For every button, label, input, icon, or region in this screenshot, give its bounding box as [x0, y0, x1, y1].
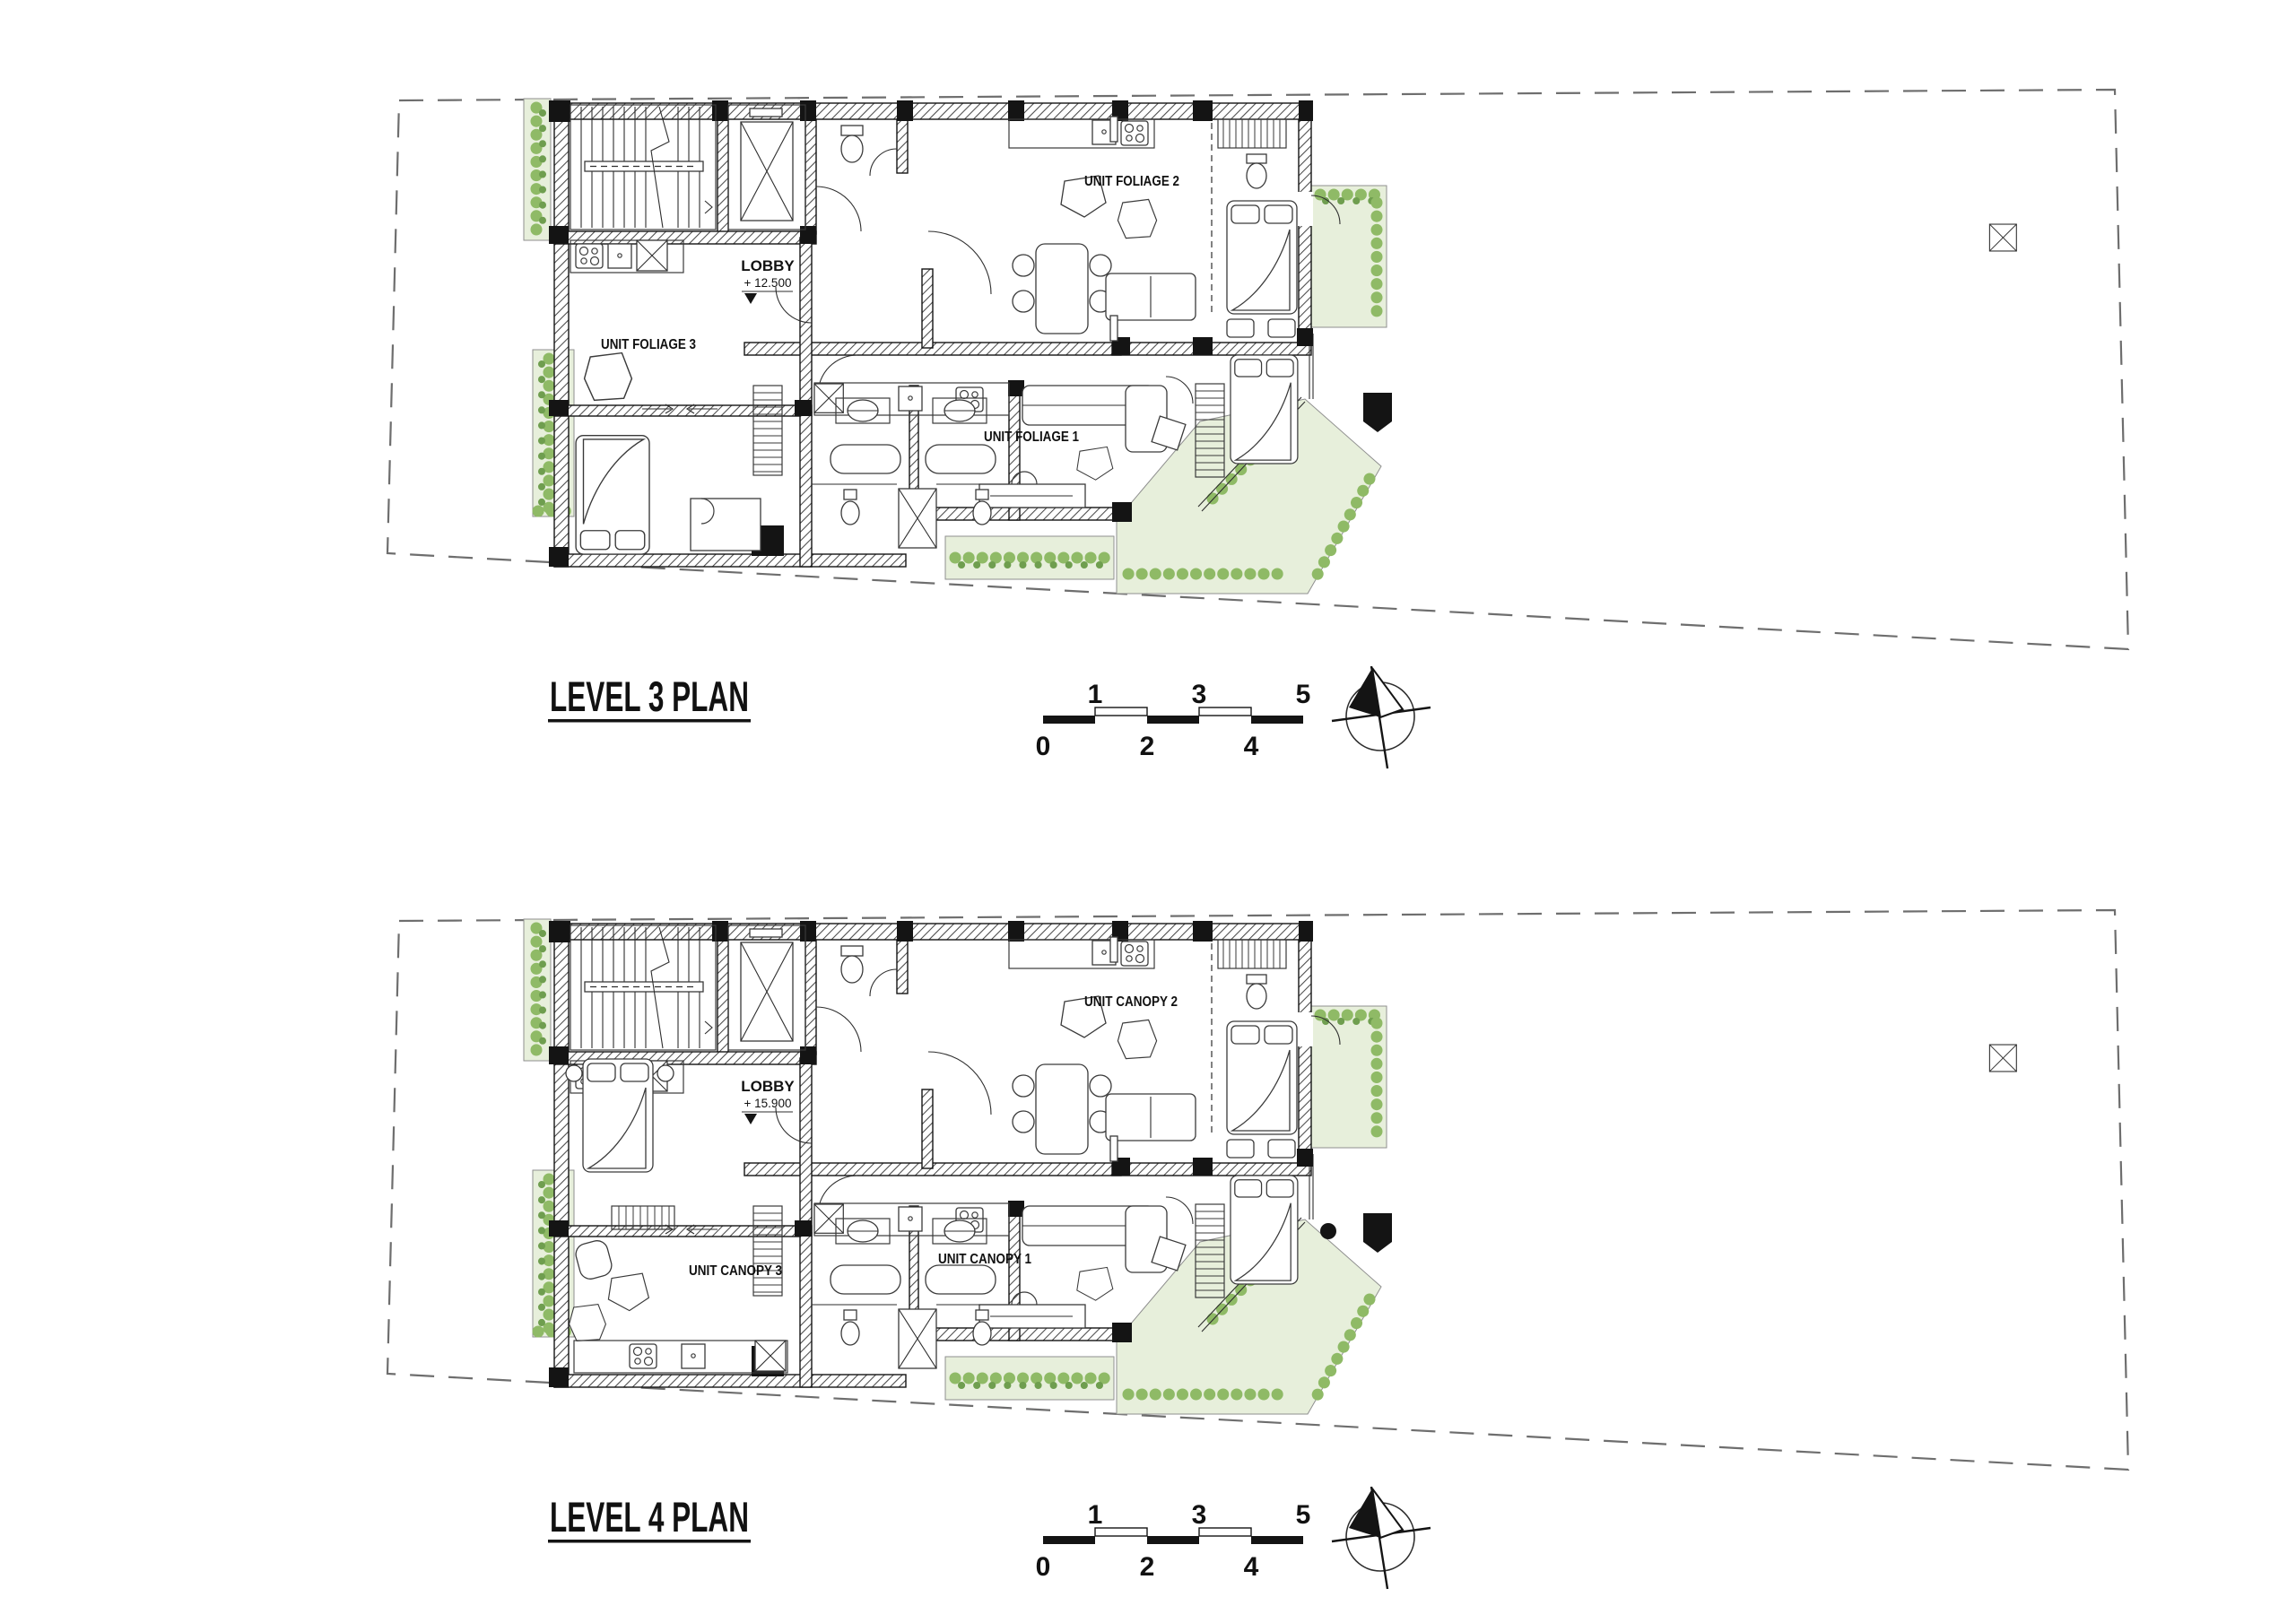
north-arrow-icon: [1332, 666, 1431, 768]
unit-label-left: UNIT FOLIAGE 3: [601, 337, 696, 352]
plan-sheet: UNIT FOLIAGE 2 UNIT FOLIAGE 3 UNIT FOLIA…: [0, 0, 2296, 1623]
unit-label-left: UNIT CANOPY 3: [689, 1263, 782, 1279]
unit-label-top-right: UNIT FOLIAGE 2: [1084, 174, 1179, 189]
title-underline: [548, 719, 751, 723]
svg-text:2: 2: [1140, 1552, 1155, 1582]
lobby-label: LOBBY: [741, 1078, 795, 1095]
north-arrow-icon: [1332, 1487, 1431, 1589]
svg-text:3: 3: [1192, 680, 1207, 709]
scale-bar-level-4: 1 3 5 0 2 4: [1036, 1500, 1311, 1582]
lobby-elevation: + 15.900: [744, 1097, 792, 1110]
svg-text:3: 3: [1192, 1500, 1207, 1530]
plan-title-level-3: LEVEL 3 PLAN: [550, 673, 749, 720]
svg-text:1: 1: [1088, 1500, 1103, 1530]
svg-text:0: 0: [1036, 732, 1051, 761]
unit-label-top-right: UNIT CANOPY 2: [1084, 994, 1178, 1010]
svg-text:5: 5: [1296, 1500, 1311, 1530]
lobby-label: LOBBY: [741, 257, 795, 274]
svg-text:5: 5: [1296, 680, 1311, 709]
svg-text:4: 4: [1244, 1552, 1259, 1582]
title-underline: [548, 1540, 751, 1543]
lobby-elevation: + 12.500: [744, 276, 792, 290]
building-level-4: [524, 919, 2016, 1414]
unit-label-bottom: UNIT FOLIAGE 1: [984, 430, 1079, 445]
unit-label-bottom: UNIT CANOPY 1: [938, 1252, 1031, 1267]
plan-title-level-4: LEVEL 4 PLAN: [550, 1493, 749, 1541]
level-3-left-unit-furniture: [576, 353, 761, 554]
level-4-plan: UNIT CANOPY 2 UNIT CANOPY 3 UNIT CANOPY …: [387, 910, 2128, 1589]
svg-text:0: 0: [1036, 1552, 1051, 1582]
svg-text:2: 2: [1140, 732, 1155, 761]
svg-text:4: 4: [1244, 732, 1259, 761]
scale-bar-level-3: 1 3 5 0 2 4: [1036, 680, 1311, 761]
level-3-plan: UNIT FOLIAGE 2 UNIT FOLIAGE 3 UNIT FOLIA…: [387, 90, 2128, 768]
floor-plan-drawing: UNIT FOLIAGE 2 UNIT FOLIAGE 3 UNIT FOLIA…: [0, 0, 2296, 1623]
svg-text:1: 1: [1088, 680, 1103, 709]
